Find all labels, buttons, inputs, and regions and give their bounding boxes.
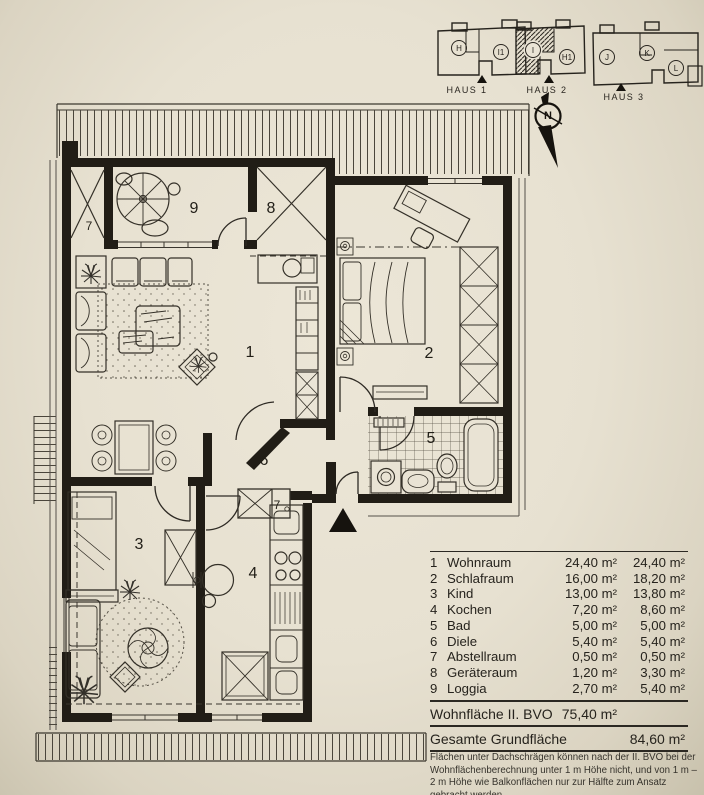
row-name: Kind: [447, 586, 553, 602]
row-num: 8: [430, 665, 447, 681]
row-value2: 8,60 m²: [617, 602, 688, 618]
row-value2: 13,80 m²: [617, 586, 688, 602]
room-label-4: 4: [249, 565, 258, 583]
row-num: 1: [430, 555, 447, 571]
compass-icon: [534, 92, 562, 168]
summary-value: 75,40 m²: [553, 706, 617, 722]
table-row: 6 Diele 5,40 m² 5,40 m²: [430, 634, 688, 650]
row-name: Geräteraum: [447, 665, 553, 681]
row-value1: 24,40 m²: [553, 555, 617, 571]
compass-north-label: N: [544, 110, 552, 122]
table-footnote: Flächen unter Dachschrägen können nach d…: [430, 752, 702, 795]
row-value2: 5,40 m²: [617, 634, 688, 650]
entry-triangle-marker: [329, 508, 357, 532]
haus-3-label: HAUS 3: [604, 92, 645, 102]
unit-circle-k: K: [639, 45, 655, 61]
room-label-1: 1: [246, 344, 255, 362]
row-num: 5: [430, 618, 447, 634]
row-value1: 2,70 m²: [553, 681, 617, 697]
room-label-5: 5: [427, 430, 436, 448]
row-name: Diele: [447, 634, 553, 650]
unit-circle-i-highlighted: I: [525, 42, 541, 58]
room-label-6: 6: [260, 452, 269, 470]
summary-value: 84,60 m²: [630, 731, 688, 747]
row-value1: 1,20 m²: [553, 665, 617, 681]
summary-label: Gesamte Grundfläche: [430, 731, 567, 747]
area-table: 1 Wohnraum 24,40 m² 24,40 m² 2 Schlafrau…: [430, 551, 688, 752]
row-num: 3: [430, 586, 447, 602]
row-num: 4: [430, 602, 447, 618]
child-room-furniture: [66, 492, 196, 704]
room-label-7-top: 7: [86, 219, 93, 233]
row-value2: 24,40 m²: [617, 555, 688, 571]
table-row: 8 Geräteraum 1,20 m² 3,30 m²: [430, 665, 688, 681]
area-table-rows: 1 Wohnraum 24,40 m² 24,40 m² 2 Schlafrau…: [430, 551, 688, 702]
row-name: Bad: [447, 618, 553, 634]
row-value2: 18,20 m²: [617, 571, 688, 587]
row-value1: 0,50 m²: [553, 649, 617, 665]
table-row: 4 Kochen 7,20 m² 8,60 m²: [430, 602, 688, 618]
row-value1: 5,00 m²: [553, 618, 617, 634]
room-label-7-closet: 7: [274, 498, 281, 512]
row-name: Abstellraum: [447, 649, 553, 665]
table-row: 9 Loggia 2,70 m² 5,40 m²: [430, 681, 688, 697]
row-name: Schlafraum: [447, 571, 553, 587]
table-row: 2 Schlafraum 16,00 m² 18,20 m²: [430, 571, 688, 587]
table-row: 7 Abstellraum 0,50 m² 0,50 m²: [430, 649, 688, 665]
unit-circle-i1: I1: [493, 44, 509, 60]
unit-circle-h: H: [451, 40, 467, 56]
row-num: 2: [430, 571, 447, 587]
table-row: 3 Kind 13,00 m² 13,80 m²: [430, 586, 688, 602]
room-label-9: 9: [190, 200, 199, 218]
row-value1: 5,40 m²: [553, 634, 617, 650]
summary-label: Wohnfläche II. BVO: [430, 706, 553, 722]
row-num: 9: [430, 681, 447, 697]
row-value2: 5,40 m²: [617, 681, 688, 697]
room-label-2: 2: [425, 345, 434, 363]
room-label-8: 8: [267, 200, 276, 218]
row-value1: 13,00 m²: [553, 586, 617, 602]
loggia-furniture: [116, 173, 180, 236]
room-label-3: 3: [135, 536, 144, 554]
row-name: Wohnraum: [447, 555, 553, 571]
summary-row-grundflaeche: Gesamte Grundfläche 84,60 m²: [430, 727, 688, 752]
table-row: 1 Wohnraum 24,40 m² 24,40 m²: [430, 555, 688, 571]
bedroom-furniture: [337, 185, 498, 403]
row-num: 6: [430, 634, 447, 650]
summary-row-wohnflaeche: Wohnfläche II. BVO 75,40 m²: [430, 702, 688, 727]
row-value1: 16,00 m²: [553, 571, 617, 587]
row-name: Loggia: [447, 681, 553, 697]
row-value2: 0,50 m²: [617, 649, 688, 665]
row-value2: 5,00 m²: [617, 618, 688, 634]
floor-plan-page: 1 2 3 4 5 6 7 7 8 9 HAUS 1 HAUS 2 HAUS 3…: [0, 0, 704, 795]
row-value2: 3,30 m²: [617, 665, 688, 681]
kitchen-furniture: [193, 489, 303, 700]
row-value1: 7,20 m²: [553, 602, 617, 618]
row-num: 7: [430, 649, 447, 665]
unit-circle-l: L: [668, 60, 684, 76]
haus-2-label: HAUS 2: [527, 85, 568, 95]
unit-circle-j: J: [599, 49, 615, 65]
haus-1-label: HAUS 1: [447, 85, 488, 95]
table-row: 5 Bad 5,00 m² 5,00 m²: [430, 618, 688, 634]
unit-circle-h1: H1: [559, 49, 575, 65]
row-name: Kochen: [447, 602, 553, 618]
